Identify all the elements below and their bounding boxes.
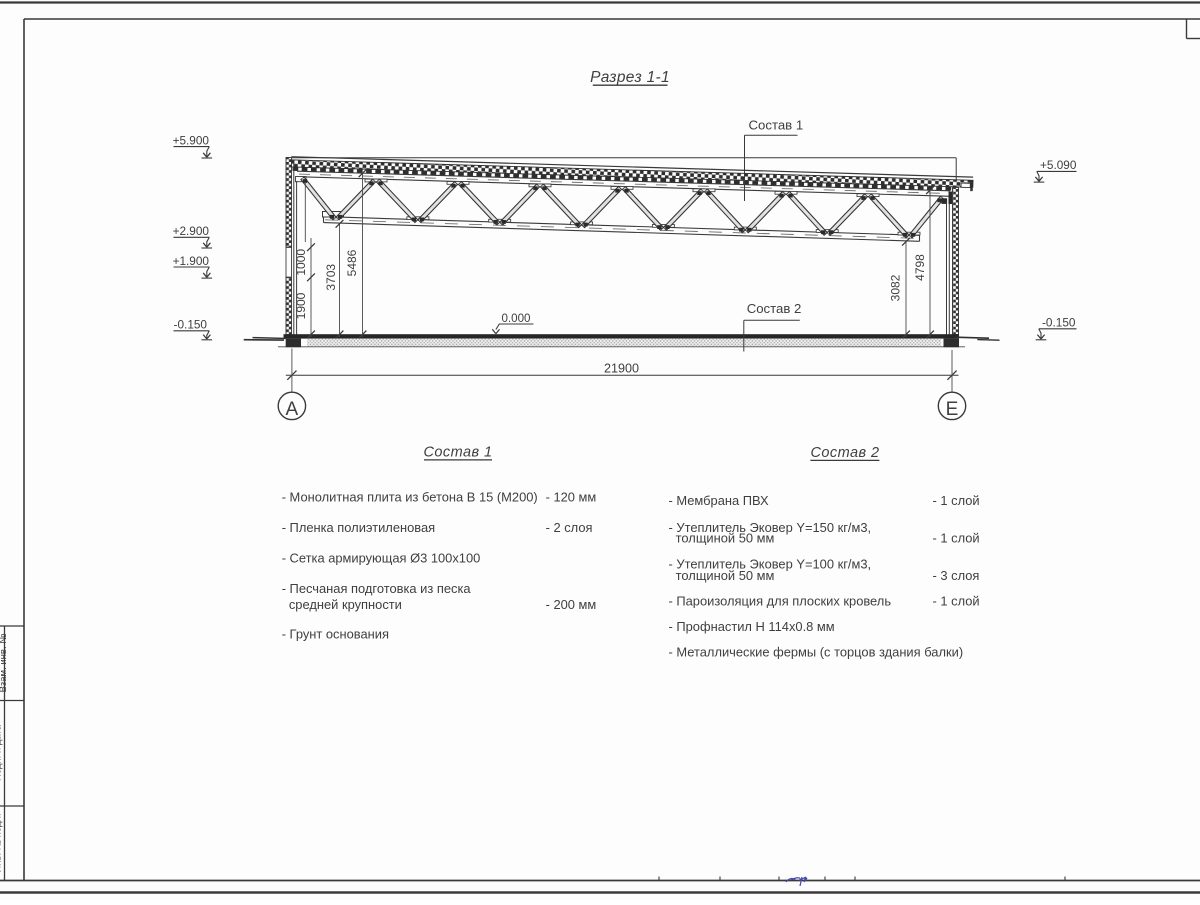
svg-text:-0.150: -0.150 bbox=[174, 318, 208, 332]
svg-text:- 1 слой: - 1 слой bbox=[933, 594, 980, 609]
svg-text:Разрез 1-1: Разрез 1-1 bbox=[590, 69, 670, 86]
svg-text:Состав 1: Состав 1 bbox=[749, 118, 804, 133]
svg-text:0.000: 0.000 bbox=[501, 312, 530, 325]
svg-text:- 1 слой: - 1 слой bbox=[933, 493, 980, 508]
svg-text:толщиной 50 мм: толщиной 50 мм bbox=[669, 531, 775, 546]
svg-text:+1.900: +1.900 bbox=[173, 254, 210, 268]
svg-text:3703: 3703 bbox=[324, 264, 338, 291]
svg-text:- 200 мм: - 200 мм bbox=[546, 597, 597, 612]
svg-text:21900: 21900 bbox=[604, 361, 639, 375]
svg-text:- 2 слоя: - 2 слоя bbox=[546, 520, 593, 535]
svg-text:Состав 1: Состав 1 bbox=[423, 444, 492, 460]
svg-text:1000: 1000 bbox=[294, 249, 308, 276]
svg-text:Состав 2: Состав 2 bbox=[810, 445, 879, 461]
svg-text:3082: 3082 bbox=[889, 274, 903, 301]
svg-text:-0.150: -0.150 bbox=[1042, 315, 1076, 329]
svg-text:Взам. инв. №: Взам. инв. № bbox=[0, 634, 9, 693]
svg-text:4798: 4798 bbox=[913, 254, 927, 281]
svg-text:средней крупности: средней крупности bbox=[282, 597, 402, 612]
svg-text:- Песчаная подготовка из песка: - Песчаная подготовка из песка bbox=[282, 581, 472, 596]
svg-text:- Пленка полиэтиленовая: - Пленка полиэтиленовая bbox=[282, 520, 435, 535]
svg-text:+2.900: +2.900 bbox=[173, 224, 210, 238]
svg-text:- Пароизоляция для плоских кро: - Пароизоляция для плоских кровель bbox=[669, 594, 892, 609]
svg-text:- 3 слоя: - 3 слоя bbox=[933, 568, 980, 583]
svg-text:Подп. и дата: Подп. и дата bbox=[0, 724, 4, 781]
svg-text:Е: Е bbox=[946, 399, 959, 420]
svg-text:- Грунт основания: - Грунт основания bbox=[282, 627, 389, 642]
svg-text:5486: 5486 bbox=[345, 249, 359, 276]
svg-text:Инв. № подл.: Инв. № подл. bbox=[0, 813, 4, 872]
svg-text:- 120 мм: - 120 мм bbox=[546, 490, 597, 505]
svg-text:- 1 слой: - 1 слой bbox=[933, 531, 980, 546]
svg-text:+5.900: +5.900 bbox=[173, 133, 210, 147]
svg-text:- Сетка армирующая Ø3 100х100: - Сетка армирующая Ø3 100х100 bbox=[282, 551, 481, 566]
svg-text:+5.090: +5.090 bbox=[1040, 158, 1077, 172]
svg-text:толщиной 50 мм: толщиной 50 мм bbox=[669, 568, 775, 583]
svg-text:- Профнастил Н 114х0.8 мм: - Профнастил Н 114х0.8 мм bbox=[669, 619, 835, 634]
svg-text:- Металлические фермы (с торцо: - Металлические фермы (с торцов здания б… bbox=[669, 645, 964, 660]
svg-text:- Монолитная плита из бетона В: - Монолитная плита из бетона В 15 (М200) bbox=[282, 490, 538, 505]
svg-text:Состав 2: Состав 2 bbox=[747, 301, 802, 316]
svg-text:- Мембрана ПВХ: - Мембрана ПВХ bbox=[669, 493, 770, 508]
svg-text:1900: 1900 bbox=[294, 292, 308, 319]
svg-text:А: А bbox=[286, 399, 299, 420]
